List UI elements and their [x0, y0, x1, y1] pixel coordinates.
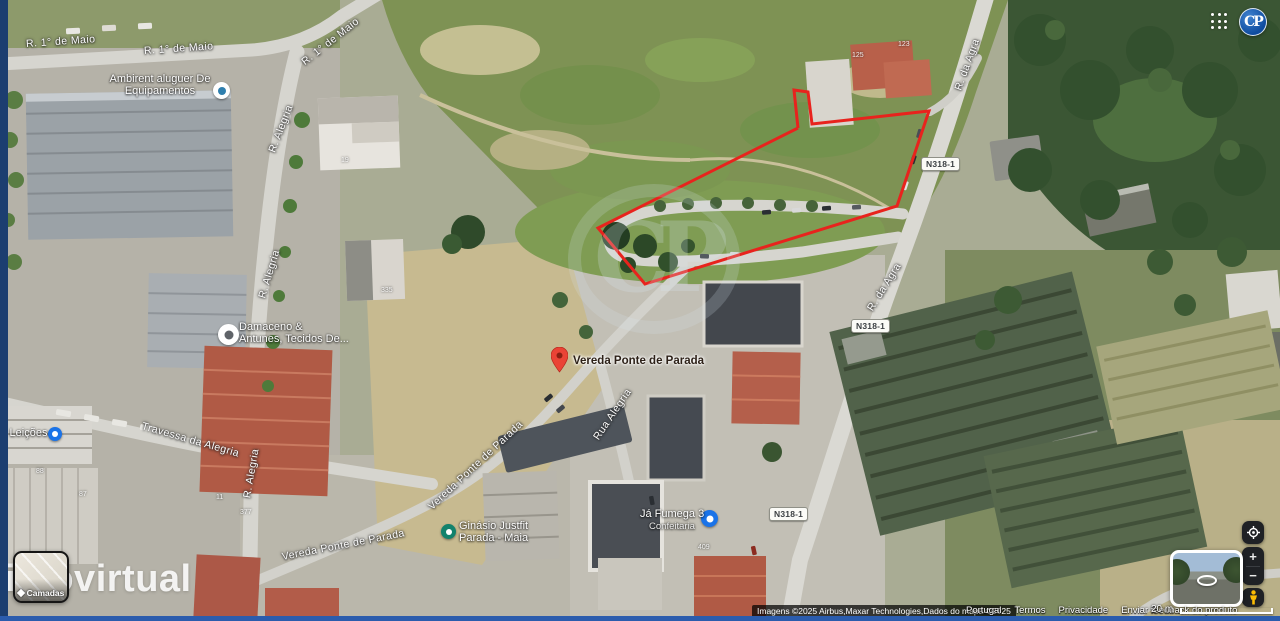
business-marker-ambirent[interactable]	[213, 82, 230, 99]
inset-tree	[1170, 559, 1190, 585]
house-number: 88	[36, 468, 44, 475]
house-number: 377	[240, 509, 252, 516]
business-marker-leicoes[interactable]	[48, 427, 62, 441]
business-label-ambirent[interactable]: Ambirent aluguer De Equipamentos	[106, 74, 214, 97]
pin-label: Vereda Ponte de Parada	[573, 355, 704, 367]
layers-label: Camadas	[27, 588, 65, 598]
house-number: 11	[216, 494, 223, 501]
business-marker-gym[interactable]	[441, 524, 456, 539]
business-label-cafe[interactable]: Já Fumega 3 Confeitaria	[640, 509, 704, 532]
center-watermark-logo: CP	[568, 176, 740, 338]
apps-grid-icon[interactable]	[1211, 13, 1228, 30]
scale-label: 20 m	[1151, 604, 1173, 615]
business-label-damaceno[interactable]: Damaceno & Antunes, Tecidos De...	[239, 322, 349, 345]
link-privacidade[interactable]: Privacidade	[1059, 605, 1109, 616]
scale-bar	[1180, 608, 1273, 614]
zoom-control[interactable]: + −	[1242, 547, 1264, 585]
layers-icon	[16, 589, 24, 597]
street-view-inset[interactable]	[1170, 550, 1243, 607]
business-marker-damaceno[interactable]	[218, 324, 239, 345]
site-logo[interactable]: CP	[1239, 8, 1267, 36]
frame-left-strip	[0, 0, 8, 621]
link-portugal[interactable]: Portugal	[966, 605, 1001, 616]
route-badge-n318: N318-1	[851, 319, 890, 333]
frame-bottom-strip	[0, 616, 1280, 621]
my-location-button[interactable]	[1242, 521, 1264, 544]
house-number: 409	[698, 544, 710, 551]
inset-pan-arrow-icon	[1197, 575, 1217, 586]
my-location-icon	[1247, 526, 1260, 539]
pegman-button[interactable]	[1242, 588, 1264, 607]
house-number: 125	[852, 52, 864, 59]
red-map-pin[interactable]	[551, 347, 568, 373]
route-badge-n318: N318-1	[921, 157, 960, 171]
business-label-gym[interactable]: Ginásio Justfit Parada - Maia	[459, 521, 528, 544]
link-termos[interactable]: Termos	[1014, 605, 1045, 616]
house-number: 123	[898, 41, 910, 48]
house-number: 335	[381, 287, 393, 294]
pegman-icon	[1249, 590, 1258, 605]
house-number: 87	[79, 491, 87, 498]
route-badge-n318: N318-1	[769, 507, 808, 521]
map-viewport[interactable]: CP R. 1° de Maio R. 1° de Maio R. 1° de …	[0, 0, 1280, 621]
zoom-in-button[interactable]: +	[1242, 547, 1264, 566]
house-number: 19	[341, 157, 349, 164]
zoom-out-button[interactable]: −	[1242, 567, 1264, 586]
inset-tree	[1223, 557, 1243, 583]
layers-button[interactable]: Camadas	[13, 551, 69, 603]
